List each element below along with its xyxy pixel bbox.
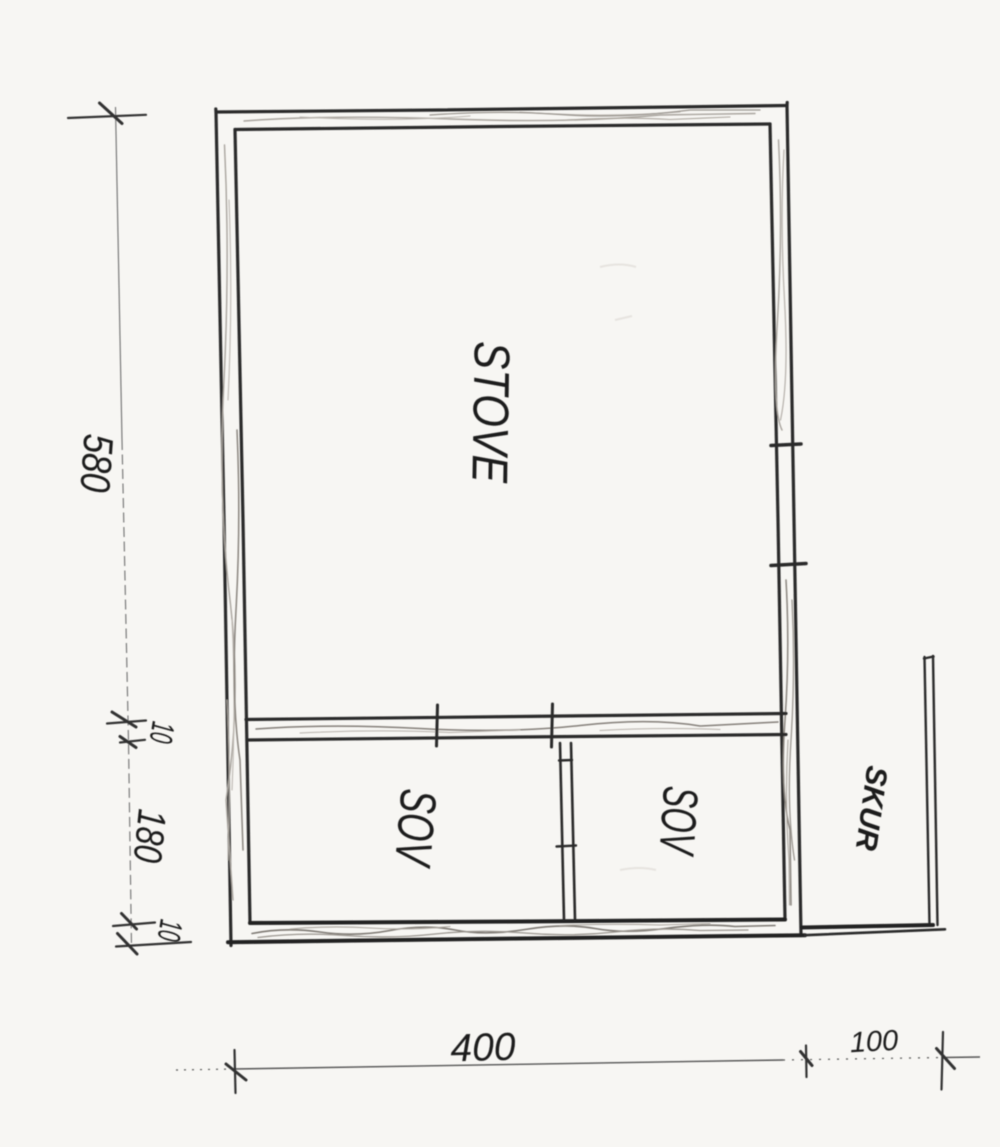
svg-text:STOVE: STOVE [462, 341, 521, 484]
svg-text:400: 400 [450, 1026, 516, 1071]
svg-text:580: 580 [71, 432, 122, 494]
svg-text:180: 180 [125, 807, 176, 865]
svg-text:SOV: SOV [649, 784, 710, 858]
svg-text:100: 100 [849, 1025, 899, 1059]
svg-text:SOV: SOV [383, 787, 446, 871]
